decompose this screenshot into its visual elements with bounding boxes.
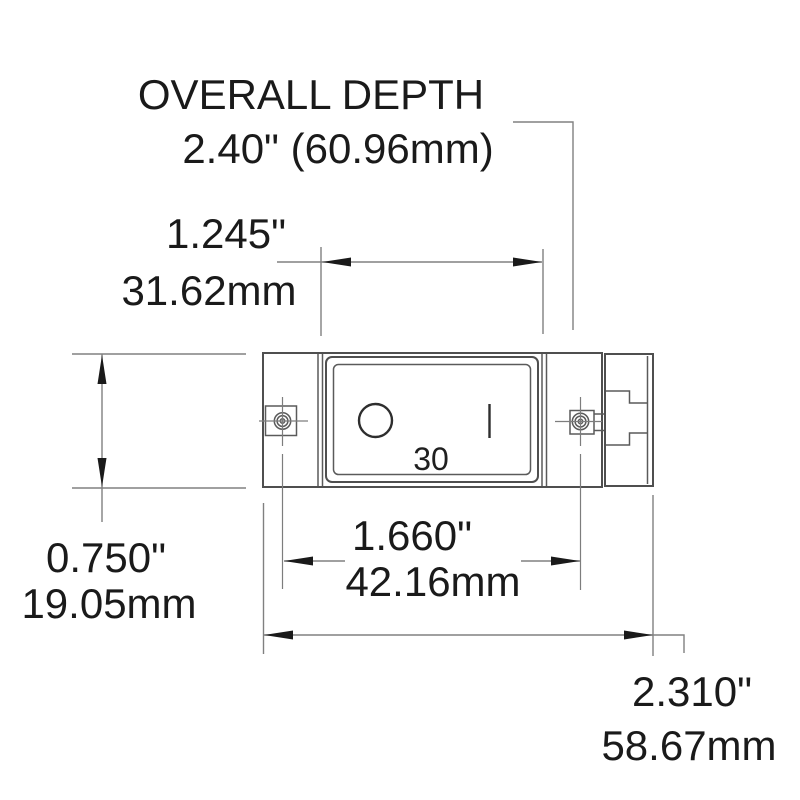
dimension-body-height: 0.750" 19.05mm xyxy=(21,354,246,627)
overall-depth-label: OVERALL DEPTH xyxy=(138,71,484,118)
dimension-overall-width: 2.310" 58.67mm xyxy=(264,495,777,769)
overall-depth-value: 2.40" (60.96mm) xyxy=(182,125,493,172)
overall-width-inches: 2.310" xyxy=(632,668,752,715)
dimension-drawing: OVERALL DEPTH 2.40" (60.96mm) 1.245" 31.… xyxy=(0,0,800,800)
front-width-mm: 31.62mm xyxy=(121,267,296,314)
arrowhead-right-icon xyxy=(513,258,542,267)
arrowhead-right-icon xyxy=(551,557,580,566)
amp-rating-marking: 30 xyxy=(413,441,449,477)
drawing-svg: OVERALL DEPTH 2.40" (60.96mm) 1.245" 31.… xyxy=(0,0,800,800)
off-symbol-icon xyxy=(359,404,392,437)
terminal-connector xyxy=(605,354,653,486)
arrowhead-right-icon xyxy=(624,631,653,640)
arrowhead-left-icon xyxy=(284,557,313,566)
connector-outline xyxy=(605,354,653,486)
rocker-switch: 30 xyxy=(326,357,538,482)
arrowhead-up-icon xyxy=(98,355,107,384)
arrowhead-left-icon xyxy=(264,631,293,640)
arrowhead-down-icon xyxy=(98,458,107,487)
arrowhead-left-icon xyxy=(322,258,351,267)
overall-width-mm: 58.67mm xyxy=(601,722,776,769)
body-height-mm: 19.05mm xyxy=(21,580,196,627)
dimension-hole-spacing: 1.660" 42.16mm xyxy=(284,512,580,605)
hole-spacing-inches: 1.660" xyxy=(352,512,472,559)
terminal-step-top xyxy=(606,391,647,403)
terminal-step-bottom xyxy=(606,433,647,445)
hole-spacing-mm: 42.16mm xyxy=(345,558,520,605)
front-width-inches: 1.245" xyxy=(166,210,286,257)
dimension-line xyxy=(264,635,684,653)
dimension-front-width: 1.245" 31.62mm xyxy=(121,210,543,336)
body-height-inches: 0.750" xyxy=(46,534,166,581)
